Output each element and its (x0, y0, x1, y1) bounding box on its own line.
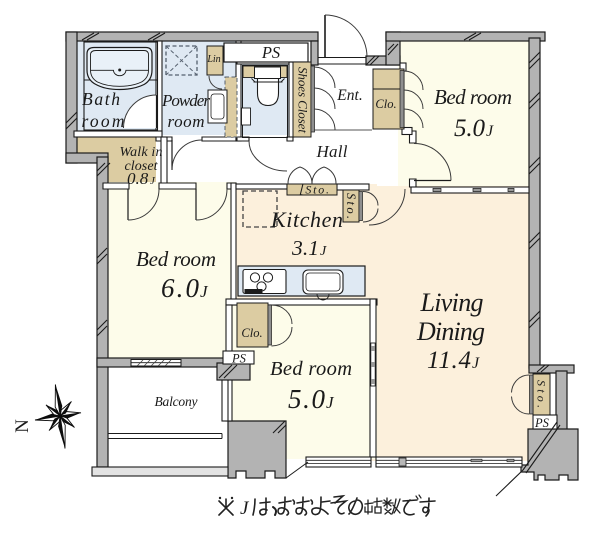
svg-text:Walk in: Walk in (120, 145, 163, 160)
svg-text:Clo.: Clo. (375, 97, 396, 111)
svg-text:J: J (486, 123, 494, 140)
svg-text:Living: Living (420, 288, 484, 317)
svg-text:Kitchen: Kitchen (270, 207, 343, 232)
svg-text:Shoes Closet: Shoes Closet (296, 67, 311, 133)
svg-text:Bath: Bath (82, 89, 120, 109)
svg-text:room: room (168, 112, 205, 131)
svg-text:PS: PS (261, 43, 280, 62)
svg-text:PS: PS (534, 416, 550, 430)
svg-text:J: J (472, 355, 480, 372)
svg-text:Hall: Hall (316, 142, 348, 161)
svg-text:N: N (12, 419, 33, 433)
svg-text:Dining: Dining (416, 317, 485, 346)
svg-text:Lin: Lin (206, 54, 220, 65)
svg-text:Bed room: Bed room (434, 85, 512, 109)
svg-text:3.1: 3.1 (291, 236, 319, 260)
svg-text:Clo.: Clo. (241, 326, 262, 340)
svg-text:5.0: 5.0 (454, 115, 486, 142)
svg-text:Balcony: Balcony (155, 394, 198, 409)
svg-text:5.0: 5.0 (288, 384, 326, 414)
svg-text:Bed room: Bed room (136, 247, 216, 271)
svg-text:Ent.: Ent. (336, 87, 362, 104)
svg-text:0.8: 0.8 (127, 169, 149, 188)
svg-text:Powder: Powder (161, 91, 210, 110)
svg-text:11.4: 11.4 (427, 347, 471, 374)
svg-text:PS: PS (231, 352, 247, 366)
svg-text:Bed room: Bed room (270, 358, 352, 380)
svg-text:6.0: 6.0 (161, 273, 200, 303)
svg-text:J: J (320, 244, 327, 259)
